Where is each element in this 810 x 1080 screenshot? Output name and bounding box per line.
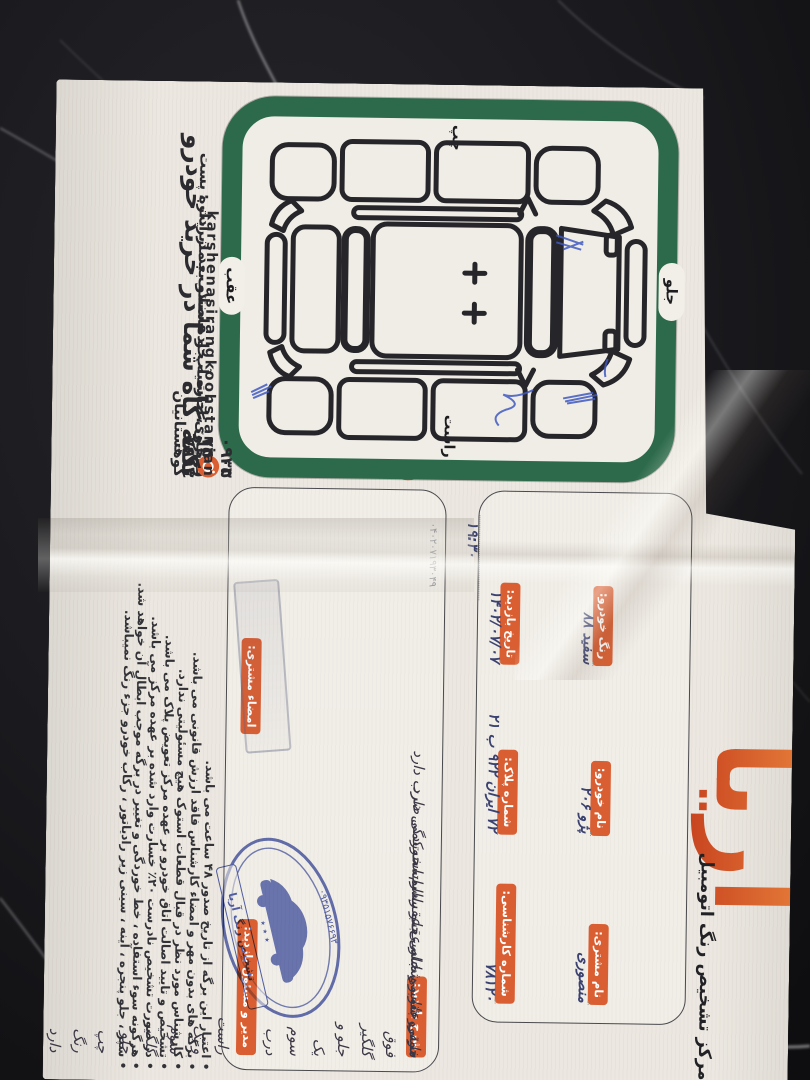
field-expert-number: شماره کارشناسی: ۷۸۱۲۰ xyxy=(487,848,578,1005)
field-line: سفید ۸۸ xyxy=(592,662,595,666)
diagram-rear-label: عقب xyxy=(218,257,245,315)
field-line: ۱۴۰۲/۰۷/۰۷ xyxy=(499,661,502,665)
field-visit-date: تاریخ بازدید: ۱۴۰۲/۰۷/۰۷ ۱۹:۳۰ xyxy=(491,510,582,667)
slogan-text: تکیه گاه شما در خرید خودرو xyxy=(176,134,210,478)
car-topview-diagram xyxy=(242,118,655,464)
field-value: ۷۸۱۲۰ xyxy=(482,962,499,1001)
field-line: ۷۸۱۲۰ xyxy=(495,1000,498,1004)
field-value: منصوری xyxy=(575,952,592,1003)
inspection-line: مابقی شاسی جلو عقب سالم است xyxy=(402,841,429,1058)
field-line: پژو ۲۰۶ xyxy=(590,832,593,836)
contact-footer: قوچان ، حاشیه جاده سنتو بعد از اداره پست… xyxy=(212,108,217,478)
page-title: مرکز تشخیص رنگ اتومبیل xyxy=(694,852,717,1080)
field-car-color: رنگ خودرو: سفید ۸۸ xyxy=(584,511,675,668)
field-plate-number: شماره پلاک: ۷۲ ایران ۹۲۲ ب ۲۱ xyxy=(489,679,580,836)
diagram-front-label: جلو xyxy=(658,263,685,321)
field-value: پژو ۲۰۶ xyxy=(577,786,594,834)
field-line: ۷۲ ایران ۹۲۲ ب ۲۱ xyxy=(497,830,500,834)
paint-inspection-sheet: آریا مرکز تشخیص رنگ اتومبیل ۰۴۰۲۰۷۱۹۳۰۴۹… xyxy=(43,79,802,1080)
field-value: ۷۲ ایران ۹۲۲ ب ۲۱ xyxy=(484,713,502,832)
field-value: ۱۴۰۲/۰۷/۰۷ xyxy=(486,590,503,663)
field-line: منصوری xyxy=(588,1001,591,1005)
blue-ink-stamp: ۰۹۳۵۱۵۷۶۶۹۳ ٭ ٭ ٭ تشخیص رنگ آریا xyxy=(192,821,364,1036)
field-car-name: نام خودرو: پژو ۲۰۶ xyxy=(582,680,673,837)
photo-of-document: آریا مرکز تشخیص رنگ اتومبیل ۰۴۰۲۰۷۱۹۳۰۴۹… xyxy=(0,0,810,1080)
field-customer-name: نام مشتری: منصوری xyxy=(580,849,671,1006)
field-value: سفید ۸۸ xyxy=(579,612,596,664)
